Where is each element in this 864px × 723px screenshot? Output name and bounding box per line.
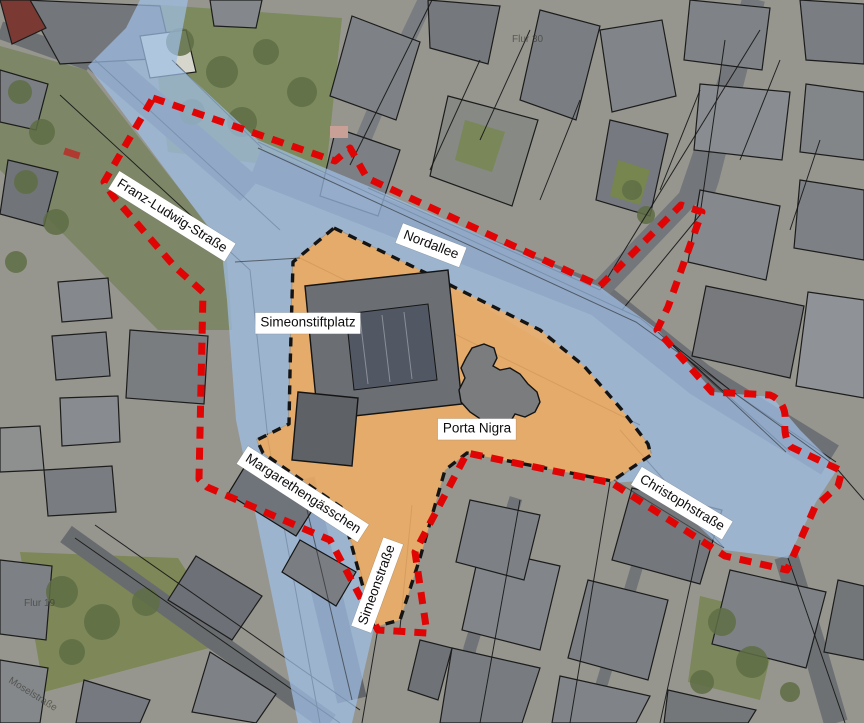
aerial-basemap: Flur 30 Flur 19 Moselstraße: [0, 0, 864, 723]
aerial-plan-map: Flur 30 Flur 19 Moselstraße Franz-Ludwig…: [0, 0, 864, 723]
cadastral-label-flur30: Flur 30: [512, 34, 544, 45]
label-porta-nigra: Porta Nigra: [438, 419, 516, 440]
cadastral-label-flur19: Flur 19: [24, 598, 56, 609]
annex-building: [292, 392, 358, 466]
label-simeonstiftplatz: Simeonstiftplatz: [255, 313, 360, 334]
